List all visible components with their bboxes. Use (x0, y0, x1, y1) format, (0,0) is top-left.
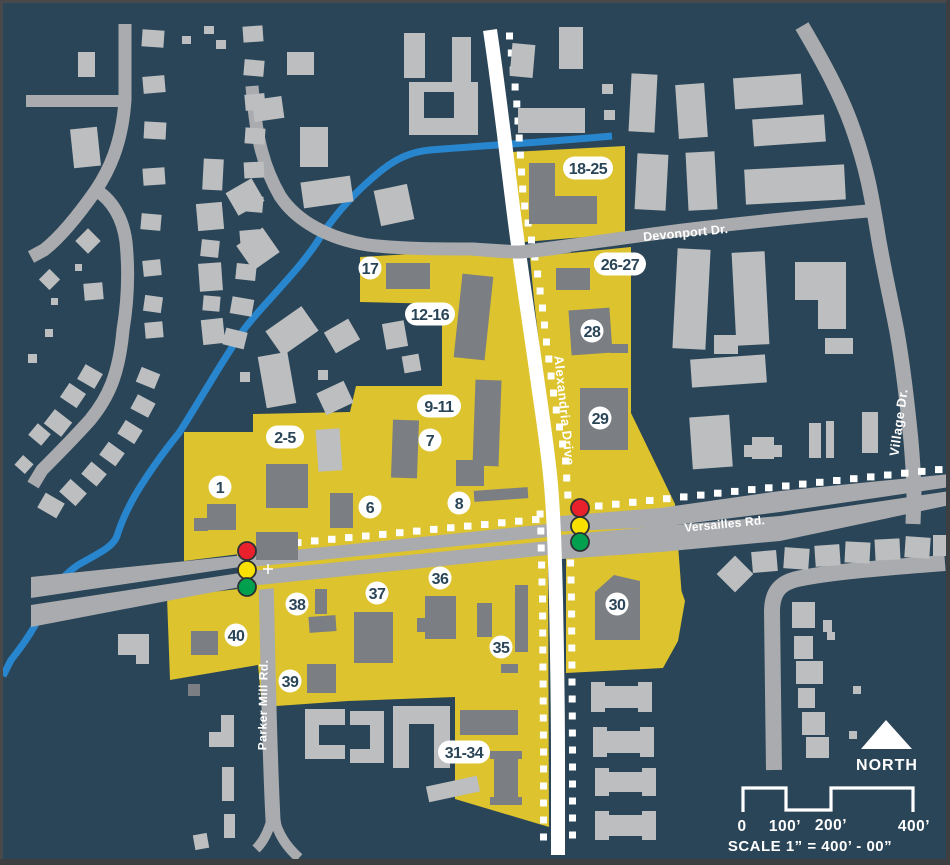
svg-text:SCALE 1” = 400’ - 00”: SCALE 1” = 400’ - 00” (728, 838, 892, 855)
svg-text:37: 37 (369, 586, 386, 603)
svg-text:38: 38 (289, 597, 306, 614)
svg-text:35: 35 (493, 640, 510, 657)
svg-text:17: 17 (362, 261, 379, 278)
svg-text:18-25: 18-25 (569, 161, 608, 178)
svg-text:0: 0 (737, 818, 746, 835)
svg-text:6: 6 (366, 500, 375, 517)
svg-text:200’: 200’ (815, 817, 847, 834)
svg-text:39: 39 (282, 674, 299, 691)
svg-text:29: 29 (592, 411, 609, 428)
svg-text:9-11: 9-11 (424, 399, 454, 416)
svg-text:8: 8 (455, 496, 464, 513)
svg-text:12-16: 12-16 (411, 307, 450, 324)
svg-text:1: 1 (216, 480, 225, 497)
svg-text:40: 40 (228, 628, 245, 645)
svg-text:400’: 400’ (898, 818, 930, 835)
svg-text:NORTH: NORTH (856, 757, 918, 774)
svg-text:36: 36 (432, 571, 449, 588)
svg-text:30: 30 (609, 597, 626, 614)
svg-text:100’: 100’ (769, 818, 801, 835)
svg-text:26-27: 26-27 (601, 257, 640, 274)
svg-text:28: 28 (584, 324, 601, 341)
svg-text:Parker Mill Rd.: Parker Mill Rd. (255, 659, 271, 750)
svg-text:31-34: 31-34 (445, 745, 484, 762)
svg-text:7: 7 (426, 433, 435, 450)
svg-text:2-5: 2-5 (274, 430, 296, 447)
